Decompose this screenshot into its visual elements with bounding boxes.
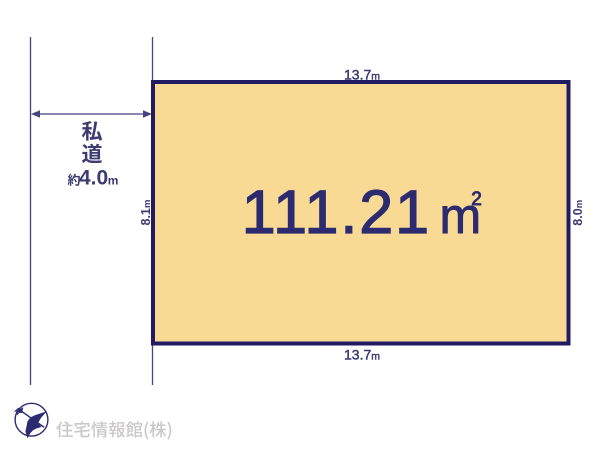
svg-text:2: 2 — [471, 189, 482, 210]
svg-text:8.1: 8.1 — [139, 208, 153, 225]
svg-text:13.7: 13.7 — [344, 66, 371, 82]
svg-text:m: m — [142, 200, 153, 208]
svg-text:m: m — [108, 174, 119, 188]
svg-text:m: m — [574, 200, 585, 208]
svg-text:m: m — [371, 70, 380, 82]
svg-text:13.7: 13.7 — [344, 346, 371, 362]
svg-text:m: m — [371, 350, 380, 362]
svg-text:8.0: 8.0 — [571, 208, 585, 225]
svg-text:4.0: 4.0 — [79, 167, 108, 190]
svg-text:111.21: 111.21 — [242, 178, 431, 246]
